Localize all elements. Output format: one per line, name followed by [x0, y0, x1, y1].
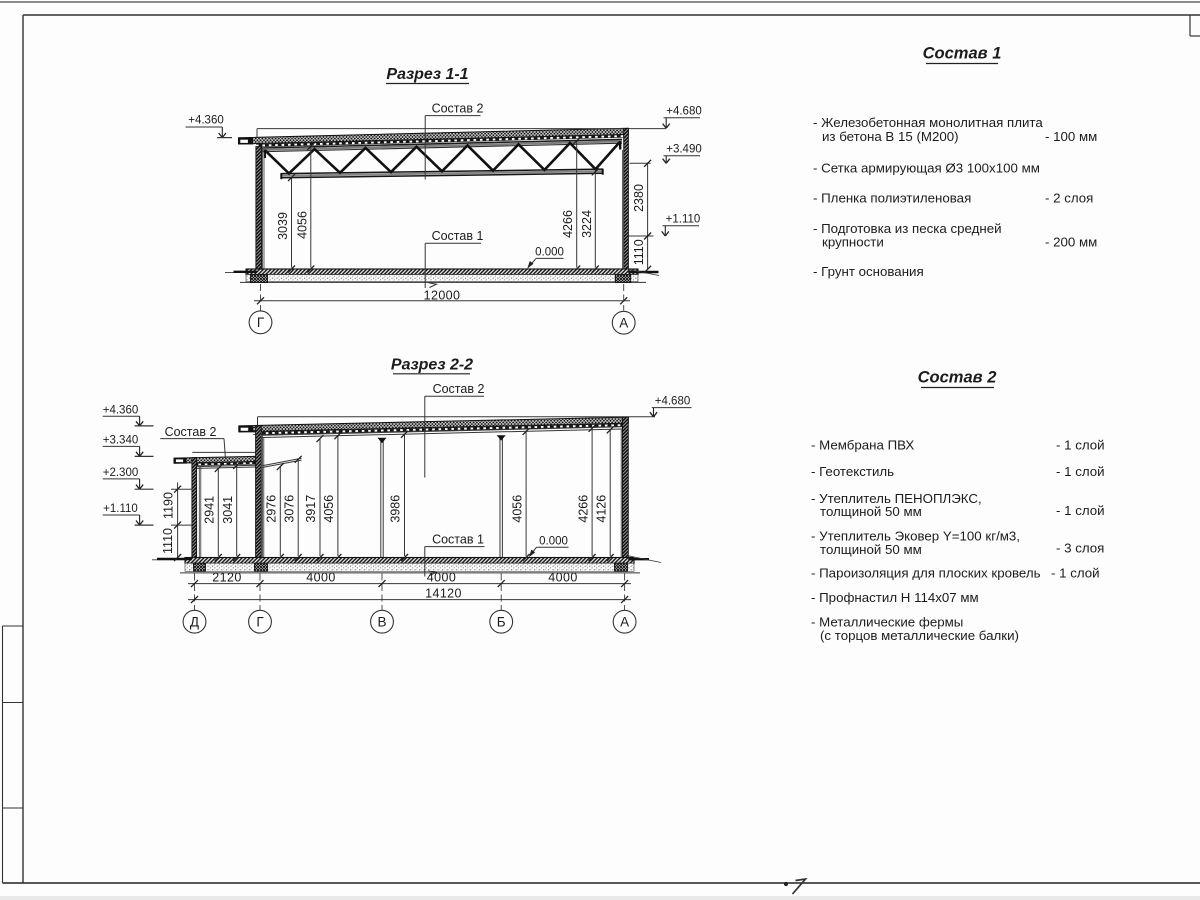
- svg-text:- Утеплитель Эковер Y=100 кг/м: - Утеплитель Эковер Y=100 кг/м3,: [811, 528, 1020, 543]
- svg-text:- Подготовка из песка средней: - Подготовка из песка средней: [813, 221, 1002, 236]
- svg-text:- 2 слоя: - 2 слоя: [1045, 191, 1093, 206]
- svg-text:- Геотекстиль: - Геотекстиль: [811, 464, 894, 479]
- svg-text:4000: 4000: [548, 571, 577, 585]
- svg-text:- 1 слой: - 1 слой: [1056, 437, 1105, 452]
- svg-text:+4.680: +4.680: [655, 396, 691, 408]
- svg-text:Состав 1: Состав 1: [923, 45, 1002, 63]
- svg-text:- 3 слоя: - 3 слоя: [1056, 540, 1104, 555]
- svg-text:1110: 1110: [632, 239, 646, 265]
- svg-text:А: А: [620, 614, 629, 629]
- svg-text:4000: 4000: [427, 571, 456, 585]
- svg-text:0.000: 0.000: [535, 247, 564, 259]
- svg-text:Состав 2: Состав 2: [433, 382, 485, 396]
- svg-text:- Мембрана ПВХ: - Мембрана ПВХ: [811, 437, 914, 452]
- svg-text:+3.490: +3.490: [666, 144, 702, 156]
- svg-text:+2.300: +2.300: [103, 467, 139, 479]
- svg-text:толщиной 50 мм: толщиной 50 мм: [820, 542, 922, 557]
- svg-text:3917: 3917: [304, 495, 318, 523]
- svg-text:- 100 мм: - 100 мм: [1045, 129, 1097, 144]
- svg-text:А: А: [619, 315, 628, 330]
- svg-text:4056: 4056: [295, 211, 309, 239]
- svg-text:4056: 4056: [322, 495, 336, 523]
- svg-text:В: В: [377, 614, 386, 629]
- svg-text:2976: 2976: [265, 495, 279, 523]
- svg-text:Состав 2: Состав 2: [918, 369, 997, 387]
- svg-text:- Грунт основания: - Грунт основания: [813, 264, 924, 279]
- svg-text:14120: 14120: [425, 587, 462, 601]
- svg-text:- 1 слой: - 1 слой: [1056, 464, 1105, 479]
- svg-text:3076: 3076: [282, 495, 296, 523]
- svg-text:3224: 3224: [580, 210, 594, 238]
- svg-text:Состав 2: Состав 2: [432, 102, 484, 116]
- svg-text:Разрез 2-2: Разрез 2-2: [391, 357, 473, 374]
- svg-text:- 1 слой: - 1 слой: [1051, 566, 1100, 581]
- svg-text:4056: 4056: [510, 495, 524, 523]
- svg-text:+1.110: +1.110: [103, 503, 138, 515]
- svg-text:+4.680: +4.680: [666, 106, 702, 118]
- svg-text:4266: 4266: [576, 495, 590, 523]
- svg-text:- Профнастил Н 114х07 мм: - Профнастил Н 114х07 мм: [811, 590, 979, 605]
- svg-text:2120: 2120: [212, 571, 241, 585]
- svg-text:толщиной 50 мм: толщиной 50 мм: [820, 504, 922, 519]
- svg-text:+1.110: +1.110: [666, 214, 701, 226]
- svg-text:0.000: 0.000: [539, 535, 568, 547]
- svg-text:+4.360: +4.360: [188, 115, 224, 127]
- svg-text:3986: 3986: [389, 495, 403, 523]
- svg-text:из бетона В 15 (М200): из бетона В 15 (М200): [822, 129, 959, 144]
- svg-text:12000: 12000: [424, 288, 461, 302]
- svg-text:4126: 4126: [594, 495, 608, 523]
- svg-text:4266: 4266: [561, 210, 575, 238]
- svg-text:- Сетка армирующая Ø3 100х100: - Сетка армирующая Ø3 100х100 мм: [813, 160, 1040, 175]
- svg-text:3039: 3039: [276, 212, 290, 240]
- svg-text:+3.340: +3.340: [103, 435, 139, 447]
- svg-text:Состав 1: Состав 1: [432, 533, 484, 547]
- svg-text:1190: 1190: [162, 492, 176, 519]
- svg-text:- Железобетонная монолитная п: - Железобетонная монолитная плита: [813, 115, 1043, 130]
- svg-text:Г: Г: [256, 614, 264, 629]
- svg-text:4000: 4000: [306, 571, 335, 585]
- svg-text:- Пароизоляция для плоских кро: - Пароизоляция для плоских кровель: [811, 566, 1041, 581]
- svg-text:- Пленка полиэтиленовая: - Пленка полиэтиленовая: [813, 191, 971, 206]
- svg-text:Д: Д: [190, 614, 199, 629]
- svg-text:2380: 2380: [632, 184, 646, 212]
- svg-text:- 1 слой: - 1 слой: [1056, 503, 1105, 518]
- svg-text:+4.360: +4.360: [103, 404, 139, 416]
- svg-text:Разрез 1-1: Разрез 1-1: [386, 66, 468, 83]
- svg-text:Состав 2: Состав 2: [165, 425, 217, 439]
- svg-text:- 200 мм: - 200 мм: [1045, 235, 1097, 250]
- svg-text:крупности: крупности: [822, 235, 884, 250]
- svg-text:Г: Г: [257, 315, 265, 330]
- svg-text:Б: Б: [497, 614, 506, 629]
- svg-text:3041: 3041: [221, 496, 235, 524]
- svg-text:2941: 2941: [202, 496, 216, 524]
- svg-text:Состав 1: Состав 1: [432, 229, 484, 243]
- svg-text:1110: 1110: [161, 528, 175, 554]
- svg-text:(с торцов металлические балки): (с торцов металлические балки): [820, 628, 1019, 643]
